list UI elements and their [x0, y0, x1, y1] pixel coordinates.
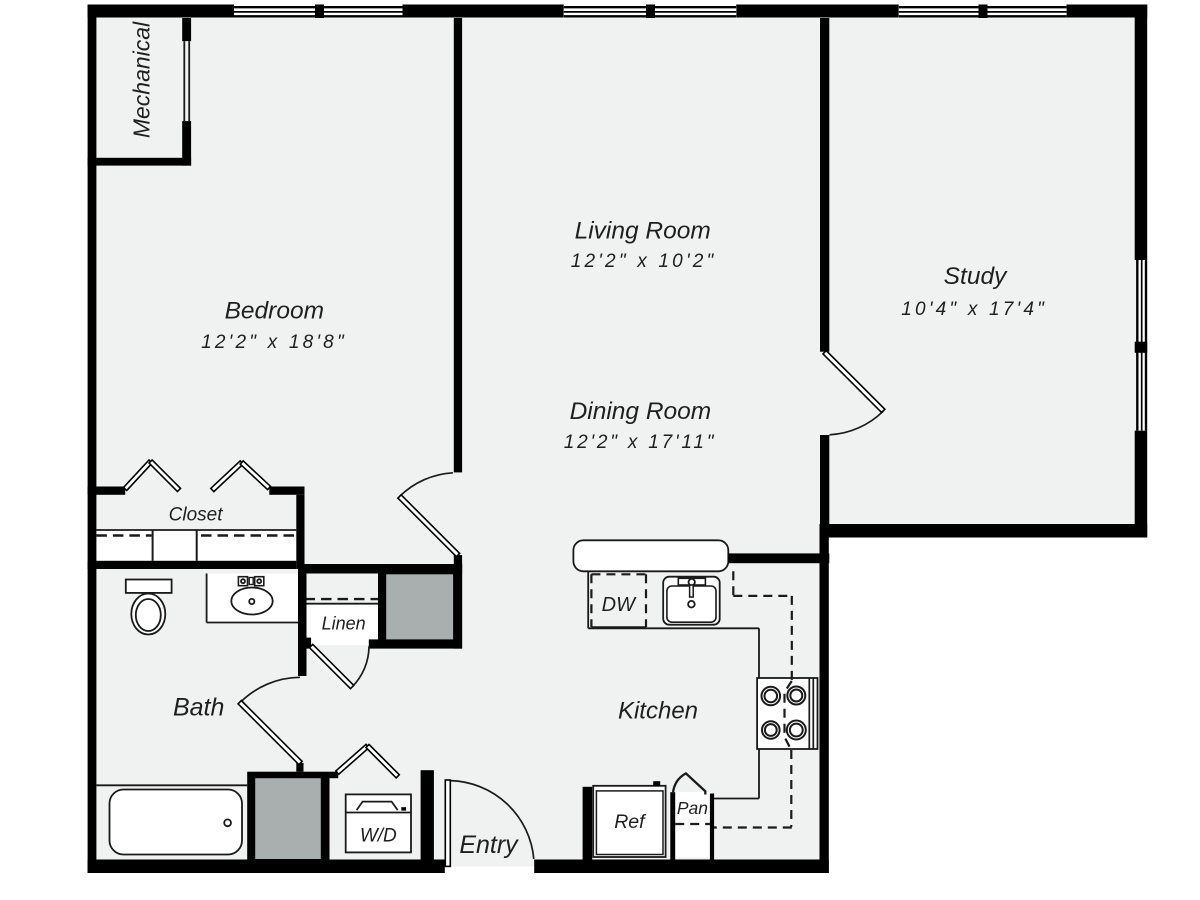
svg-text:Living Room: Living Room: [575, 218, 711, 245]
svg-text:12'2" x 18'8": 12'2" x 18'8": [201, 332, 347, 353]
svg-text:Linen: Linen: [322, 613, 366, 633]
svg-text:10'4" x 17'4": 10'4" x 17'4": [901, 299, 1047, 320]
svg-text:Bath: Bath: [173, 694, 224, 722]
svg-text:Dining Room: Dining Room: [570, 398, 712, 425]
svg-text:12'2" x 17'11": 12'2" x 17'11": [564, 432, 717, 453]
svg-text:Kitchen: Kitchen: [618, 698, 698, 725]
svg-text:W/D: W/D: [360, 826, 397, 847]
svg-text:Bedroom: Bedroom: [225, 297, 324, 324]
svg-text:Closet: Closet: [169, 504, 224, 525]
svg-text:DW: DW: [602, 594, 637, 616]
svg-text:Pan: Pan: [677, 798, 708, 818]
svg-text:Mechanical: Mechanical: [129, 21, 155, 138]
svg-text:12'2" x 10'2": 12'2" x 10'2": [571, 251, 717, 272]
svg-text:Study: Study: [944, 263, 1008, 290]
svg-text:Entry: Entry: [459, 831, 519, 859]
svg-text:Ref: Ref: [614, 811, 647, 833]
